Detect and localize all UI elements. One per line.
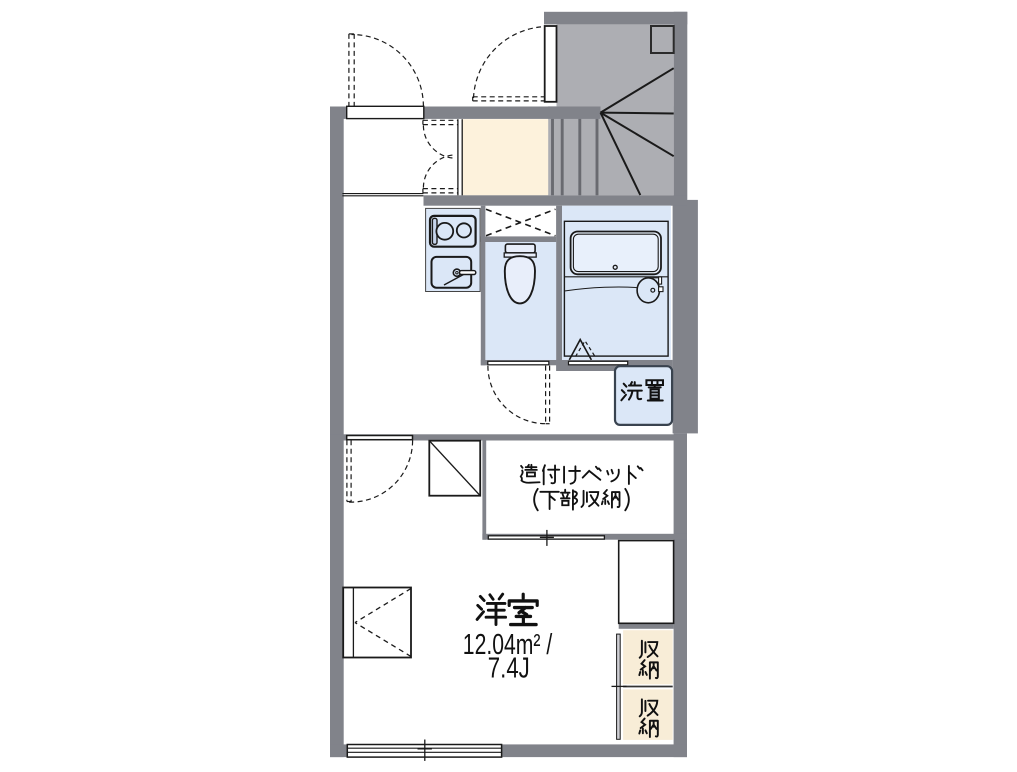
svg-text:7.4J: 7.4J xyxy=(488,653,530,685)
